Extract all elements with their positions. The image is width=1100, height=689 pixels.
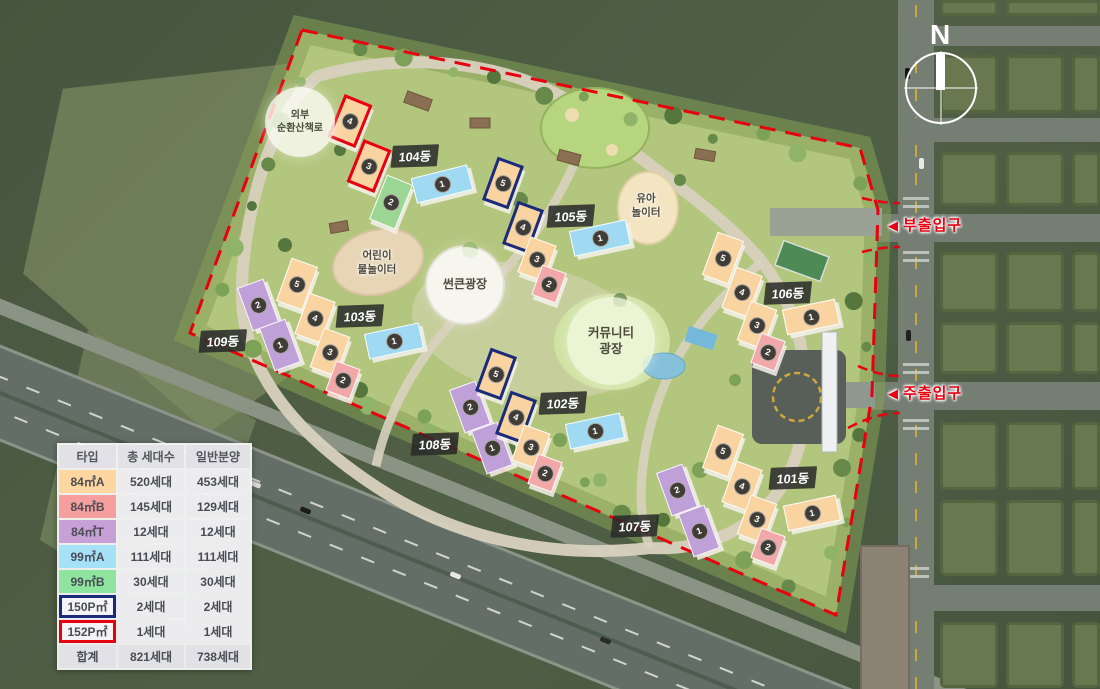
legend-total-cell: 1세대 xyxy=(118,620,184,643)
amenity-label-line: 물놀이터 xyxy=(358,263,397,277)
building-label: 102동 xyxy=(539,391,588,415)
unit-number: 1 xyxy=(384,331,404,351)
unit-number: 3 xyxy=(358,155,380,177)
legend-row: 84㎡B145세대129세대 xyxy=(59,495,250,518)
unit-number: 2 xyxy=(757,536,779,558)
tree xyxy=(624,112,638,126)
amenity-label: 커뮤니티광장 xyxy=(567,297,655,385)
legend-general-cell: 1세대 xyxy=(186,620,250,643)
unit-number: 1 xyxy=(590,228,610,248)
tree xyxy=(708,134,718,144)
legend-type-cell: 84㎡A xyxy=(59,470,116,493)
tree xyxy=(579,92,589,102)
building-label: 105동 xyxy=(547,204,596,228)
legend-total-cell: 30세대 xyxy=(118,570,184,593)
unit-number: 1 xyxy=(585,421,605,441)
sand-bunker xyxy=(565,108,579,122)
tree xyxy=(580,477,590,487)
amenity-label-line: 순환산책로 xyxy=(277,122,323,135)
unit-number: 2 xyxy=(666,479,688,501)
tree xyxy=(729,374,741,386)
unit-number: 1 xyxy=(688,520,710,542)
legend-general-cell: 2세대 xyxy=(186,595,250,618)
tree xyxy=(334,144,346,156)
legend-total-cell: 111세대 xyxy=(118,545,184,568)
unit-number: 2 xyxy=(757,341,779,363)
tree xyxy=(296,77,306,87)
entrance-marker: ◀부출입구 xyxy=(888,214,962,235)
legend-row: 84㎡A520세대453세대 xyxy=(59,470,250,493)
entrance-marker: ◀주출입구 xyxy=(888,382,962,403)
legend-total-cell: 821세대 xyxy=(118,645,184,668)
entrance-arrow-icon: ◀ xyxy=(888,218,899,233)
amenity-label-line: 외부 xyxy=(291,109,309,122)
building-label: 107동 xyxy=(611,514,660,538)
legend-row: 99㎡A111세대111세대 xyxy=(59,545,250,568)
tree xyxy=(833,459,851,477)
unit-number: 2 xyxy=(534,462,556,484)
site-plan-image: 43215432154321212154321215432154321 104동… xyxy=(0,0,1100,689)
tree xyxy=(418,409,432,423)
legend-table: 타입총 세대수일반분양 84㎡A520세대453세대84㎡B145세대129세대… xyxy=(57,443,252,670)
unit-number: 3 xyxy=(746,314,768,336)
amenity-label: 유아놀이터 xyxy=(632,192,661,219)
unit-number: 1 xyxy=(481,437,503,459)
legend-type-cell: 152P㎡ xyxy=(59,620,116,643)
legend-row: 84㎡T12세대12세대 xyxy=(59,520,250,543)
legend-type-cell: 99㎡B xyxy=(59,570,116,593)
unit-number: 4 xyxy=(731,475,753,497)
compass: N xyxy=(895,18,990,133)
sand-bunker xyxy=(606,144,618,156)
amenity-label-line: 유아 xyxy=(636,192,655,206)
amenity-label-line: 광장 xyxy=(599,341,622,357)
tree xyxy=(853,176,867,190)
entrance-arrow-icon: ◀ xyxy=(888,386,899,401)
legend-type-cell: 84㎡B xyxy=(59,495,116,518)
amenity-label: 썬큰광장 xyxy=(427,247,503,323)
unit-number: 4 xyxy=(339,110,361,132)
building-label: 106동 xyxy=(764,281,813,305)
amenity-label: 외부순환산책로 xyxy=(265,87,335,157)
legend-row: 152P㎡1세대1세대 xyxy=(59,620,250,643)
tree xyxy=(395,49,413,67)
entrance-label: 부출입구 xyxy=(903,217,962,234)
legend-general-cell: 453세대 xyxy=(186,470,250,493)
tree xyxy=(789,144,807,162)
legend-total-cell: 145세대 xyxy=(118,495,184,518)
tree xyxy=(535,87,553,105)
legend-type-cell: 150P㎡ xyxy=(59,595,116,618)
unit-number: 2 xyxy=(247,294,269,316)
legend-row: 99㎡B30세대30세대 xyxy=(59,570,250,593)
tree xyxy=(553,433,567,447)
legend-general-cell: 129세대 xyxy=(186,495,250,518)
legend-row: 합계821세대738세대 xyxy=(59,645,250,668)
building-label: 103동 xyxy=(336,304,385,328)
tree xyxy=(247,201,257,211)
building-label: 109동 xyxy=(199,329,248,353)
tree xyxy=(448,67,458,77)
legend-general-cell: 30세대 xyxy=(186,570,250,593)
legend-type-cell: 합계 xyxy=(59,645,116,668)
unit-number: 5 xyxy=(492,172,514,194)
amenity-label-line: 썬큰광장 xyxy=(443,277,487,293)
unit-number: 2 xyxy=(459,396,481,418)
tree xyxy=(824,546,838,560)
gate-canopy xyxy=(822,332,837,452)
building-label: 101동 xyxy=(769,466,818,490)
tree xyxy=(862,342,872,352)
entrance-label: 주출입구 xyxy=(903,385,962,402)
pavilion xyxy=(470,118,490,128)
tree xyxy=(845,292,863,310)
amenity-label: 어린이물놀이터 xyxy=(358,249,397,276)
legend-header: 타입 xyxy=(59,445,116,468)
unit-number: 2 xyxy=(538,273,560,295)
legend-total-cell: 520세대 xyxy=(118,470,184,493)
tree xyxy=(674,174,686,186)
unit-number: 4 xyxy=(731,281,753,303)
amenity-label-line: 커뮤니티 xyxy=(588,325,634,341)
entry-road-sub xyxy=(770,208,882,236)
tree xyxy=(226,239,244,257)
tree xyxy=(278,238,292,252)
legend-total-cell: 2세대 xyxy=(118,595,184,618)
unit-number: 1 xyxy=(802,503,822,523)
unit-number: 1 xyxy=(432,174,453,195)
tree xyxy=(215,283,229,297)
unit-number: 5 xyxy=(712,247,734,269)
amenity-label-line: 놀이터 xyxy=(632,206,661,220)
tree xyxy=(593,473,607,487)
compass-north-label: N xyxy=(930,19,950,50)
amenity-label-line: 어린이 xyxy=(363,249,392,263)
unit-number: 5 xyxy=(712,440,734,462)
legend-header: 일반분양 xyxy=(186,445,250,468)
legend-header: 총 세대수 xyxy=(118,445,184,468)
tree xyxy=(261,157,275,171)
legend-type-cell: 99㎡A xyxy=(59,545,116,568)
legend-general-cell: 12세대 xyxy=(186,520,250,543)
legend-total-cell: 12세대 xyxy=(118,520,184,543)
unit-number: 5 xyxy=(286,273,308,295)
legend-general-cell: 738세대 xyxy=(186,645,250,668)
unit-number: 2 xyxy=(332,369,354,391)
unit-number: 5 xyxy=(485,363,507,385)
building-label: 104동 xyxy=(391,144,440,168)
unit-number: 3 xyxy=(319,341,341,363)
legend-row: 150P㎡2세대2세대 xyxy=(59,595,250,618)
unit-number: 3 xyxy=(746,508,768,530)
building-label: 108동 xyxy=(411,432,460,456)
tree xyxy=(244,340,262,358)
legend-type-cell: 84㎡T xyxy=(59,520,116,543)
unit-number: 4 xyxy=(512,216,534,238)
unit-number: 1 xyxy=(269,334,291,356)
unit-number: 4 xyxy=(304,307,326,329)
unit-number: 1 xyxy=(801,307,821,327)
unit-number: 2 xyxy=(380,191,402,213)
legend-general-cell: 111세대 xyxy=(186,545,250,568)
